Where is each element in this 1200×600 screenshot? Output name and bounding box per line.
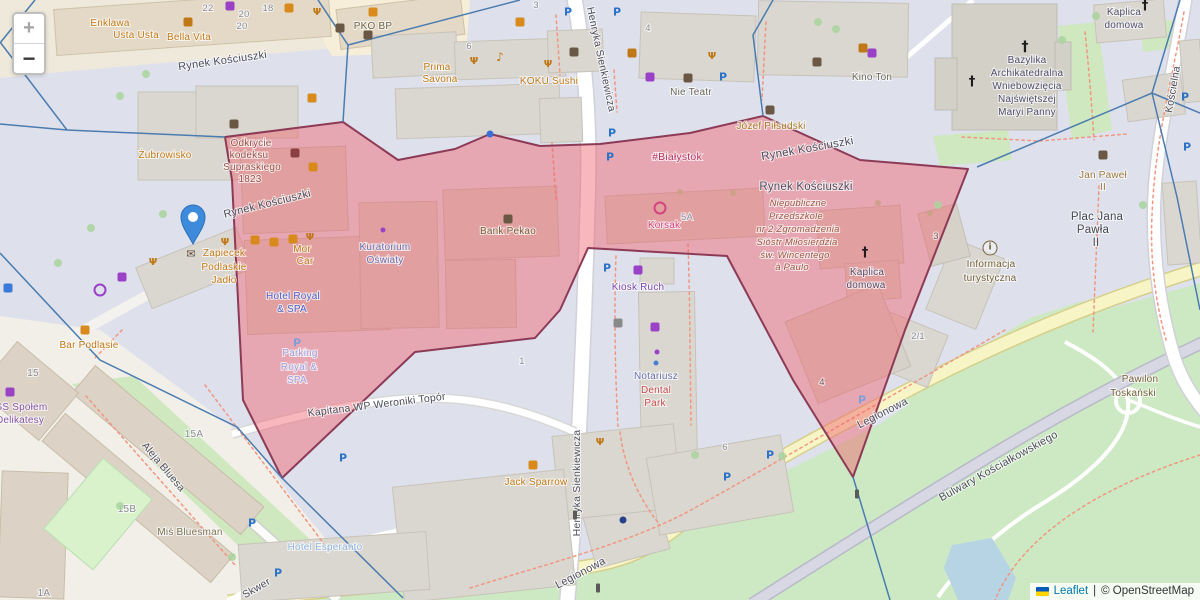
- map-label: Żubrowisko: [138, 148, 191, 161]
- map-label: II: [1093, 237, 1100, 249]
- map-label: Bazylika: [1008, 55, 1047, 66]
- map-label: Kino Ton: [852, 72, 892, 83]
- map-label: Najświętszej: [998, 94, 1056, 105]
- map-label: #Białystok: [652, 151, 702, 163]
- attribution-bar: Leaflet | © OpenStreetMap: [1030, 583, 1200, 600]
- map-label: 1823: [238, 174, 261, 185]
- map-label: Bar Podlasie: [59, 340, 118, 351]
- map-label: Nie Teatr: [670, 87, 712, 98]
- map-label: 3: [933, 231, 938, 242]
- map-label: Niepubliczne: [770, 198, 827, 209]
- zoom-in-button[interactable]: +: [14, 14, 44, 44]
- map-label: Bank Pekao: [480, 226, 536, 237]
- map-label: 2/1: [911, 331, 925, 342]
- map-label: II: [1100, 182, 1106, 193]
- map-label: turystyczna: [964, 273, 1017, 284]
- zoom-out-button[interactable]: −: [14, 44, 44, 73]
- map-label: Zapiecek: [203, 248, 246, 259]
- map-tiles[interactable]: Rynek KościuszkiRynek KościuszkiRynek Ko…: [0, 0, 1200, 600]
- map-label: Kiosk Ruch: [612, 282, 665, 293]
- map-label: domowa: [1105, 20, 1144, 31]
- map-label: 1: [519, 356, 524, 367]
- map-label: Hotel Esperanto: [288, 542, 363, 553]
- map-label: Archikatedralna: [991, 68, 1064, 79]
- map-label: Wniebowzięcia: [992, 81, 1062, 92]
- ukraine-flag-icon: [1036, 587, 1049, 596]
- map-label: 3: [533, 0, 538, 11]
- map-label: Miś Bluesman: [157, 527, 222, 538]
- map-label: 18: [263, 3, 274, 14]
- map-label: Park: [644, 398, 666, 409]
- map-label: Notariusz: [634, 371, 678, 382]
- map-label: Maryi Panny: [998, 107, 1056, 118]
- osm-credit: © OpenStreetMap: [1101, 585, 1194, 597]
- map-label: Kuratorium: [360, 242, 411, 253]
- map-label: Toskański: [1110, 388, 1156, 399]
- map-label: 22: [203, 3, 214, 14]
- map-label: Pawła: [1077, 224, 1110, 236]
- attribution-separator: |: [1093, 585, 1096, 597]
- map-label: Savona: [422, 74, 457, 85]
- map-label: Royal &: [281, 362, 318, 373]
- map-label: Przedszkole: [769, 211, 823, 222]
- map-label: Enklawa: [90, 18, 129, 29]
- map-label: Informacja: [967, 259, 1016, 270]
- map-label: 1A: [38, 588, 51, 599]
- map-label: Delikatesy: [0, 415, 44, 426]
- map-label: domowa: [847, 280, 886, 291]
- map-label: & SPA: [277, 304, 307, 315]
- map-label: 15: [27, 368, 39, 379]
- map-label: Jan Paweł: [1079, 170, 1128, 181]
- map-label: à Paulo: [775, 262, 809, 273]
- map-label: Rynek Kościuszki: [759, 181, 852, 193]
- map-canvas[interactable]: Rynek KościuszkiRynek KościuszkiRynek Ko…: [0, 0, 1200, 600]
- map-label: Pawilon: [1122, 374, 1158, 385]
- map-label: KOKU Sushi: [520, 76, 578, 87]
- marker-pin-icon: [178, 203, 208, 245]
- map-label: Dental: [641, 385, 671, 396]
- map-label: Supraskiego: [223, 162, 281, 173]
- zoom-control: + −: [12, 12, 46, 75]
- map-label: Korsak: [648, 220, 681, 231]
- map-label: Kaplica: [850, 267, 884, 278]
- map-label: Jack Sparrow: [505, 477, 569, 488]
- map-label: Podlaskie: [201, 262, 246, 273]
- map-label: 15B: [118, 504, 137, 515]
- map-label: Mor: [293, 244, 311, 255]
- map-label: 6: [722, 442, 727, 453]
- map-label: św. Wincentego: [760, 250, 829, 261]
- map-label: Kaplica: [1107, 7, 1141, 18]
- map-label: PKO BP: [354, 21, 393, 32]
- map-label: Józef Piłsudski: [736, 121, 805, 132]
- map-label: Prima: [423, 62, 450, 73]
- map-label: Sióstr Miłosierdzia: [757, 237, 838, 248]
- map-label: SPA: [287, 375, 307, 386]
- map-label: Car: [297, 256, 314, 267]
- map-label: Jadło: [212, 275, 237, 286]
- map-label: Parking: [282, 348, 317, 359]
- map-label: 20: [239, 9, 250, 20]
- map-label: 4: [645, 23, 650, 34]
- map-label: 4: [819, 377, 824, 388]
- map-label: Plac Jana: [1071, 211, 1124, 223]
- map-label: Henryka Sienkiewicza: [571, 430, 583, 537]
- map-label: 20: [237, 21, 248, 32]
- map-label: nr 2 Zgromadzenia: [756, 224, 839, 235]
- map-label: Usta Usta: [113, 30, 159, 41]
- map-label: 15A: [185, 429, 204, 440]
- map-label: Hotel Royal: [266, 291, 320, 302]
- map-label: 6: [466, 41, 471, 52]
- map-label: PSS Społem: [0, 402, 47, 413]
- map-label: Bella Vita: [167, 32, 211, 43]
- map-marker[interactable]: [178, 203, 208, 250]
- leaflet-link[interactable]: Leaflet: [1054, 585, 1089, 597]
- map-label: Odkrycie: [230, 138, 271, 149]
- map-label: Oświaty: [367, 255, 404, 266]
- map-label: kodeksu: [230, 150, 269, 161]
- map-label: 5A: [681, 212, 693, 223]
